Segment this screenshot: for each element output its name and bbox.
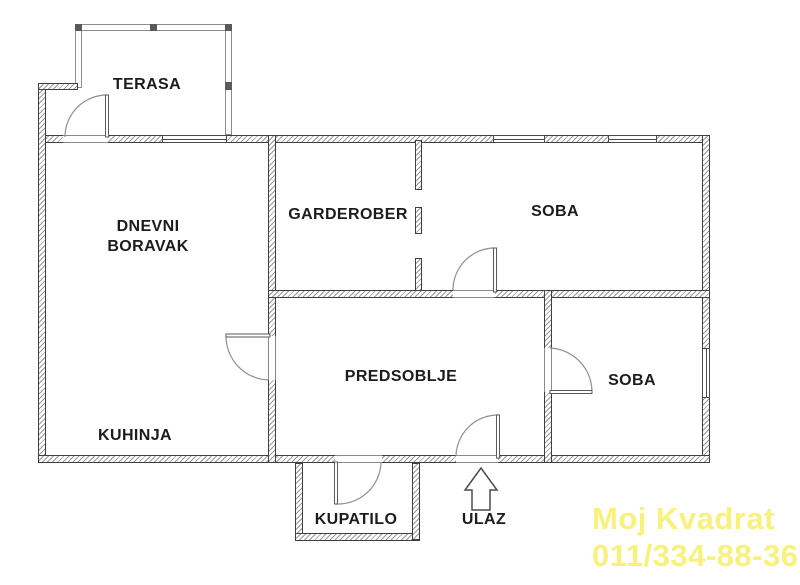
room-label-soba-top: SOBA xyxy=(531,202,579,222)
room-label-terasa: TERASA xyxy=(113,75,181,95)
entrance-door-leaf xyxy=(497,415,500,458)
bath-door-leaf xyxy=(335,462,338,504)
terrace-door-arc xyxy=(65,95,107,137)
watermark: Moj Kvadrat 011/334-88-36 xyxy=(592,500,798,574)
soba-right-door-leaf xyxy=(550,391,592,394)
entrance-door-arc xyxy=(456,415,498,456)
room-label-kupatilo: KUPATILO xyxy=(315,510,398,530)
kitchen-door-leaf xyxy=(226,334,270,337)
soba-top-door-arc xyxy=(453,248,495,290)
watermark-line1: Moj Kvadrat xyxy=(592,500,798,537)
bath-door-arc xyxy=(336,463,381,504)
room-label-kuhinja: KUHINJA xyxy=(98,426,172,446)
floor-plan: TERASA DNEVNI BORAVAK GARDEROBER SOBA PR… xyxy=(0,0,800,585)
entrance-arrow-icon xyxy=(465,468,497,510)
room-label-predsoblje: PREDSOBLJE xyxy=(345,367,457,387)
soba-top-door-leaf xyxy=(494,248,497,292)
kitchen-door-arc xyxy=(226,336,268,380)
room-label-soba-right: SOBA xyxy=(608,371,656,391)
watermark-line2: 011/334-88-36 xyxy=(592,537,798,574)
room-label-ulaz: ULAZ xyxy=(462,510,506,530)
terrace-door-leaf xyxy=(106,95,109,137)
room-label-dnevni-boravak: DNEVNI BORAVAK xyxy=(107,217,188,257)
soba-right-door-arc xyxy=(550,348,592,392)
room-label-garderober: GARDEROBER xyxy=(288,205,408,225)
